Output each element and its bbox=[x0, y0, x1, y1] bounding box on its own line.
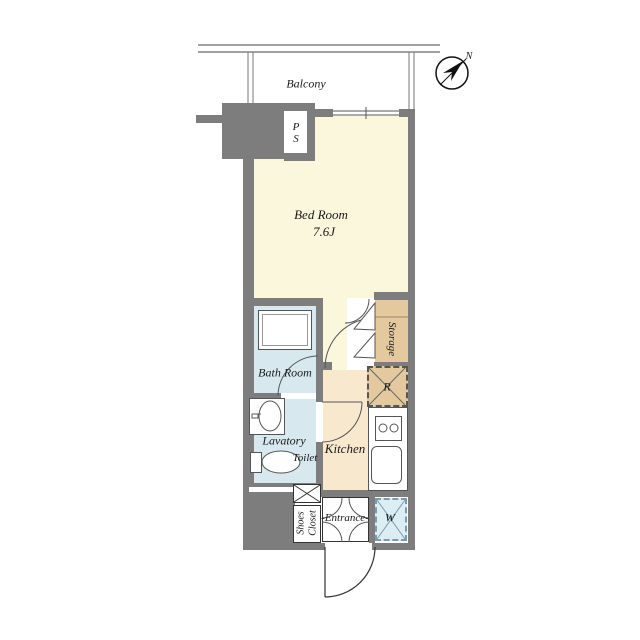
bathtub-inner bbox=[262, 314, 308, 346]
wall-above-entrance bbox=[316, 490, 408, 497]
wall-mid-upper bbox=[316, 298, 323, 402]
wall-bottom-left bbox=[243, 543, 325, 550]
floor-plan: Balcony N P S Bed Room 7.6J Bath Room La… bbox=[0, 0, 640, 640]
wall-bottom-right bbox=[372, 543, 415, 550]
wall-bottom-left-mass bbox=[243, 489, 295, 550]
wall-bedroom-door-nub bbox=[316, 362, 332, 370]
storage-bifold-panel-1 bbox=[354, 303, 375, 330]
window-lines bbox=[333, 111, 399, 115]
bedroom-passage-area bbox=[323, 298, 347, 370]
wall-column-block bbox=[222, 103, 284, 159]
balcony-divider-right bbox=[409, 52, 414, 112]
toilet-tank-icon bbox=[250, 452, 262, 473]
wall-left-stub bbox=[196, 115, 223, 123]
kitchen-sink-icon bbox=[371, 446, 402, 484]
stove-icon bbox=[375, 416, 402, 441]
shaft-box bbox=[293, 484, 321, 503]
compass-north-label: N bbox=[466, 51, 473, 64]
refrigerator-space-box bbox=[367, 366, 408, 407]
storage-bifold-panel-2 bbox=[354, 333, 375, 358]
meter-box-slot bbox=[249, 487, 293, 492]
wall-right bbox=[408, 109, 415, 550]
entrance-box bbox=[322, 497, 369, 542]
wall-ps-bottom bbox=[284, 153, 315, 161]
shoes-closet-box bbox=[293, 505, 321, 543]
storage-area bbox=[375, 300, 408, 362]
balcony-label: Balcony bbox=[286, 77, 325, 92]
lavatory-sink-icon bbox=[249, 398, 285, 435]
balcony-divider-left bbox=[248, 52, 253, 103]
wall-storage-top bbox=[374, 292, 415, 300]
wall-bedroom-bath bbox=[243, 298, 323, 306]
front-door-arc bbox=[325, 547, 375, 597]
compass-icon bbox=[436, 57, 468, 89]
washer-space-box bbox=[375, 498, 407, 541]
balcony-edge-lines bbox=[198, 45, 440, 52]
pipe-space-box bbox=[284, 111, 307, 153]
storage-door-arc bbox=[345, 299, 369, 323]
wall-window-left bbox=[315, 109, 333, 117]
bathtub-icon bbox=[258, 310, 312, 350]
kitchen-area bbox=[323, 370, 368, 491]
